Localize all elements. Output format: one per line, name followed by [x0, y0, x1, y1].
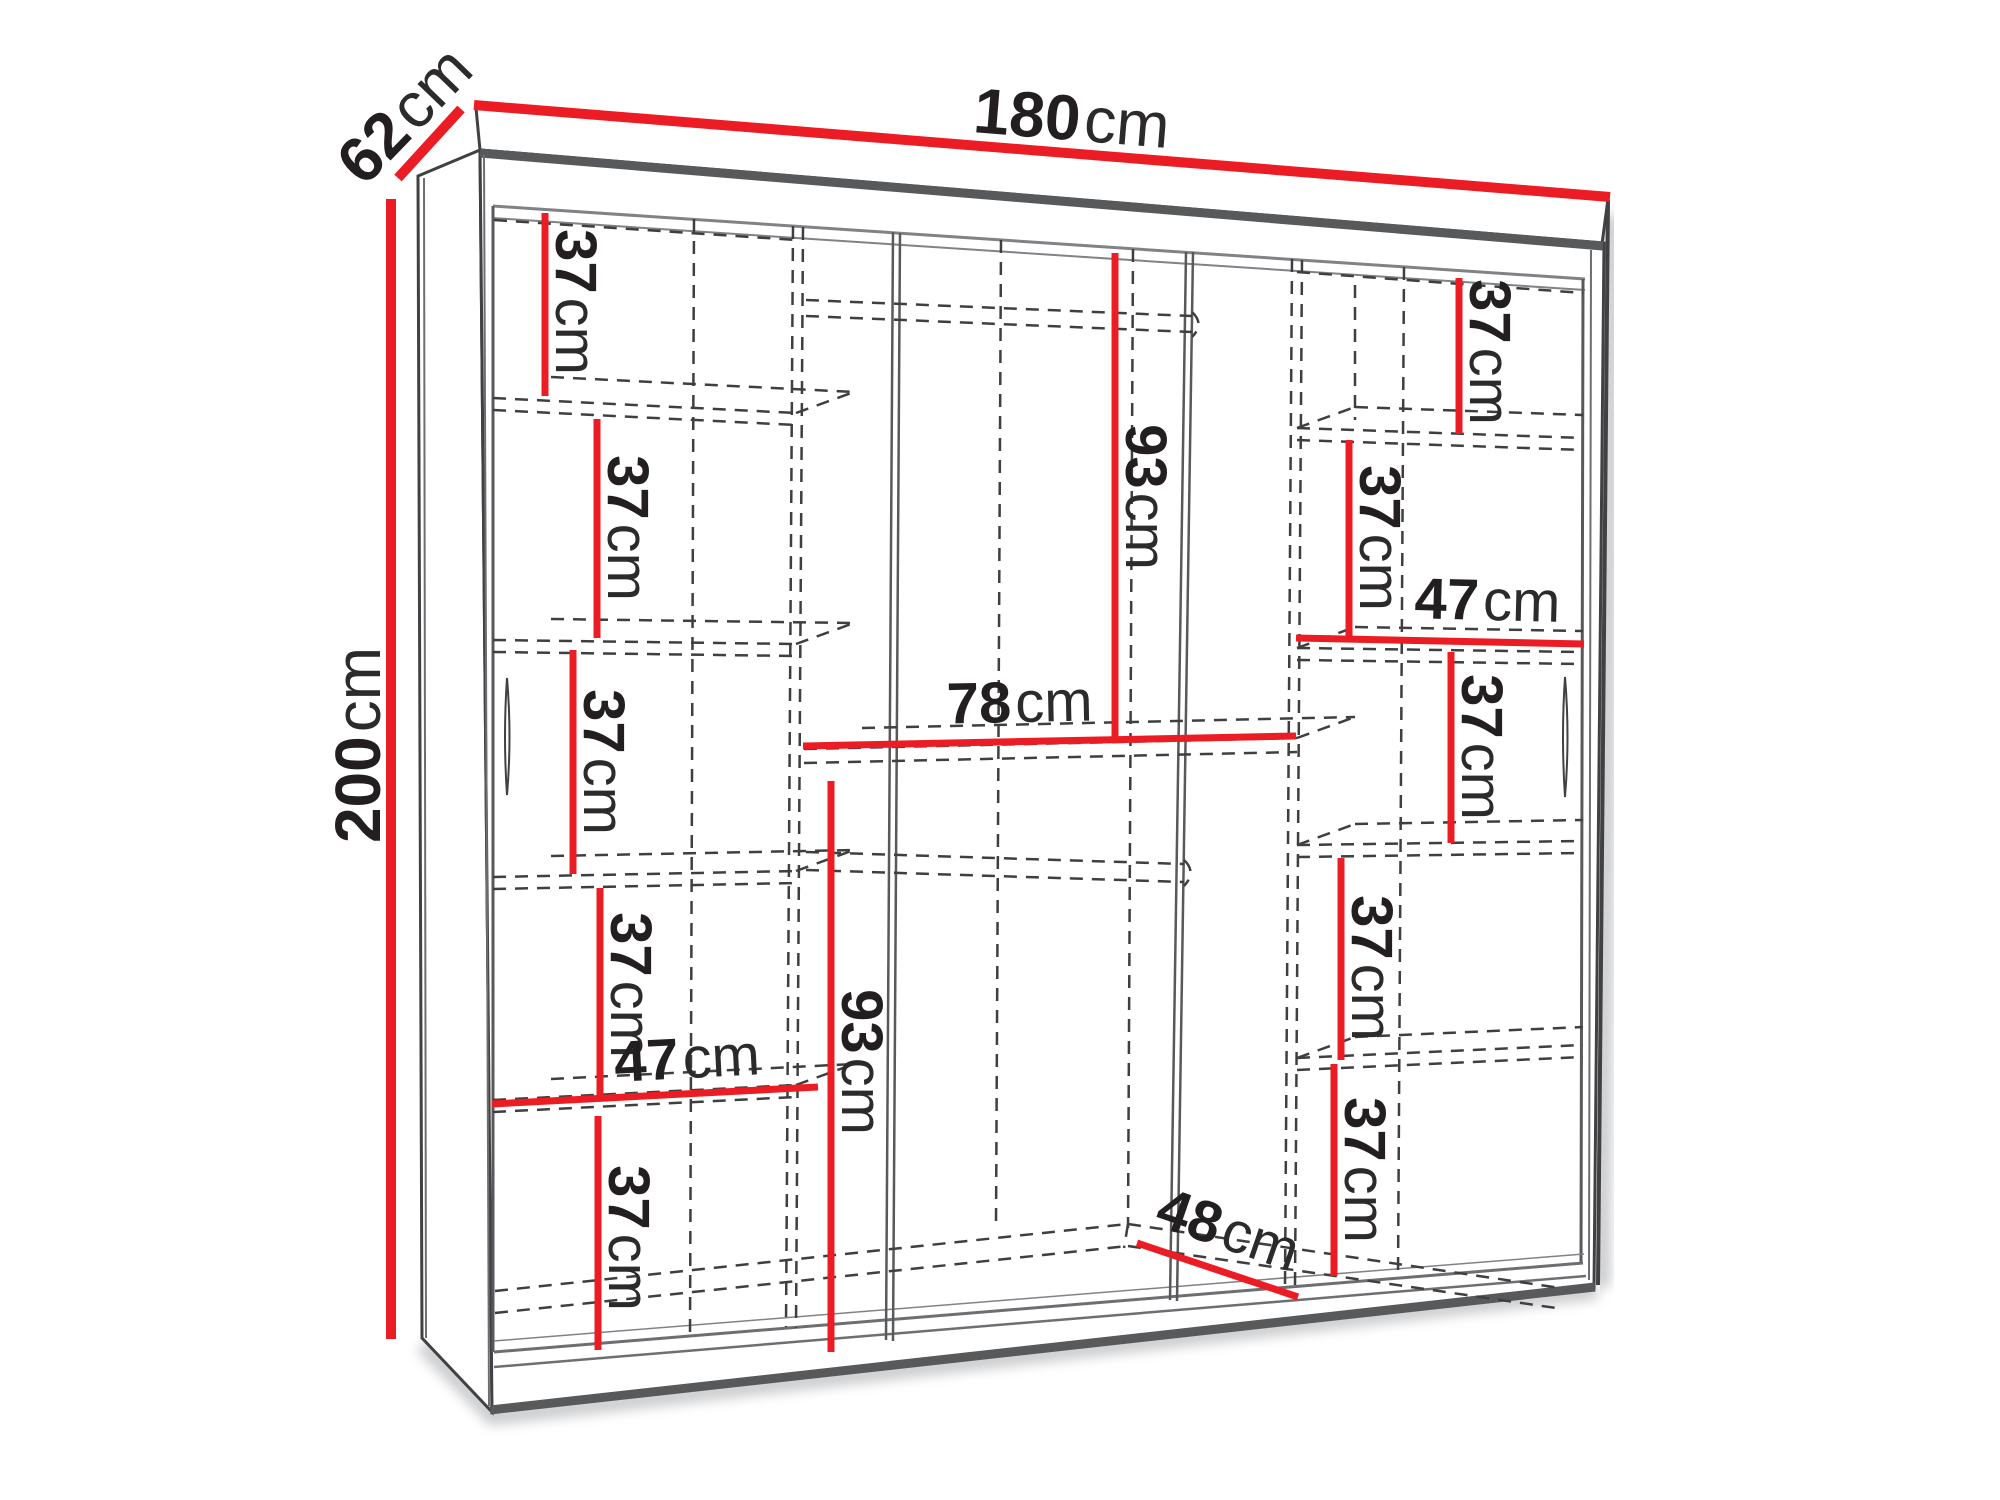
dim-label-left-shelf-3: 37cm	[571, 689, 636, 835]
dim-label-middle-upper-height: 93cm	[1113, 424, 1178, 570]
dim-label-right-shelf-2: 37cm	[1347, 465, 1412, 611]
dim-label-right-shelf-5: 37cm	[1332, 1097, 1397, 1243]
wardrobe-dimension-diagram: 180cm 62cm 200cm 37cm 37cm 37cm 37cm 37c…	[0, 0, 2000, 1500]
dim-label-right-shelf-1: 37cm	[1457, 279, 1522, 425]
dim-label-left-shelf-2: 37cm	[595, 455, 660, 601]
diagram-canvas: 180cm 62cm 200cm 37cm 37cm 37cm 37cm 37c…	[0, 0, 2000, 1500]
dim-label-height: 200cm	[322, 647, 394, 843]
dim-label-right-shelf-3: 37cm	[1449, 674, 1514, 820]
dim-label-middle-lower-height: 93cm	[829, 989, 894, 1135]
dim-label-right-width: 47cm	[1414, 566, 1561, 635]
dim-label-left-width: 47cm	[612, 1022, 761, 1095]
dim-label-left-shelf-5: 37cm	[596, 1165, 661, 1311]
dim-label-left-shelf-1: 37cm	[543, 229, 608, 375]
dim-label-middle-width: 78cm	[946, 668, 1093, 736]
interior-right-edge	[1581, 279, 1583, 1263]
dim-label-right-shelf-4: 37cm	[1339, 895, 1404, 1041]
